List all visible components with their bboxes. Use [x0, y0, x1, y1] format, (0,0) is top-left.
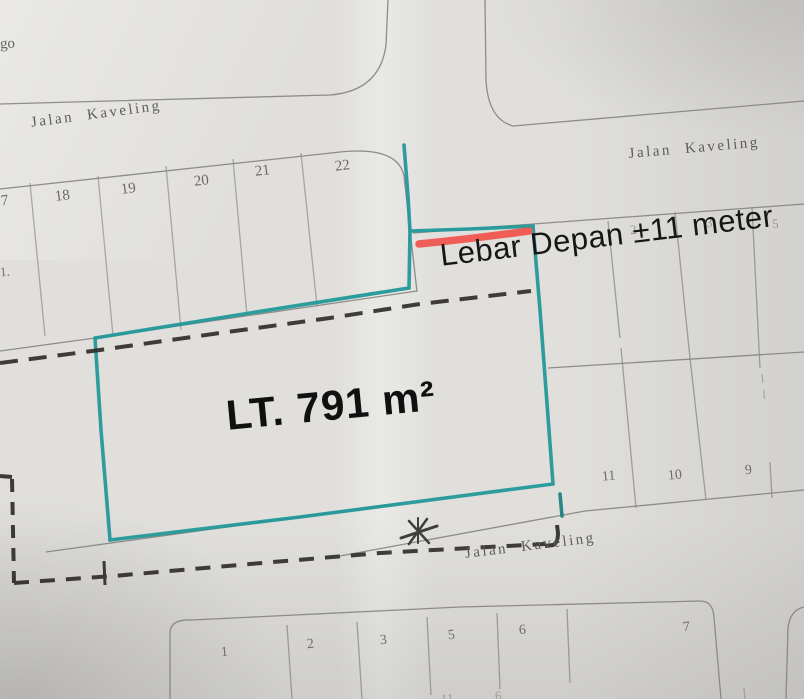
partial-text-top-left: go	[0, 36, 15, 54]
plot-number: 19	[120, 180, 137, 199]
plot-number: 7	[0, 193, 10, 211]
plot-number: 3	[379, 633, 387, 650]
plot-number: 18	[54, 187, 71, 206]
partial-plot-label-bottom-edge: 11	[440, 690, 454, 699]
star-mark	[401, 518, 437, 544]
plot-number: 9	[744, 463, 752, 480]
plot-boundary-teal	[95, 145, 562, 540]
partial-plot-label-left-edge: 1.	[0, 264, 10, 281]
scanned-site-plan: go Jalan Kaveling Jalan Kaveling Jalan K…	[0, 0, 804, 699]
plot-number: 21	[254, 162, 271, 181]
plot-number: 7	[682, 620, 690, 637]
plot-number: 22	[334, 157, 351, 176]
plot-number: 5	[447, 628, 455, 645]
dashed-boundary	[0, 291, 558, 585]
partial-plot-label-bottom-edge: 6	[494, 688, 502, 699]
plot-number: 10	[667, 467, 682, 484]
plot-number: 6	[518, 623, 526, 640]
plot-number: 2	[306, 637, 314, 654]
plot-number: 1	[220, 645, 228, 662]
plot-number: 11	[601, 468, 616, 485]
plot-number: 20	[193, 172, 210, 191]
